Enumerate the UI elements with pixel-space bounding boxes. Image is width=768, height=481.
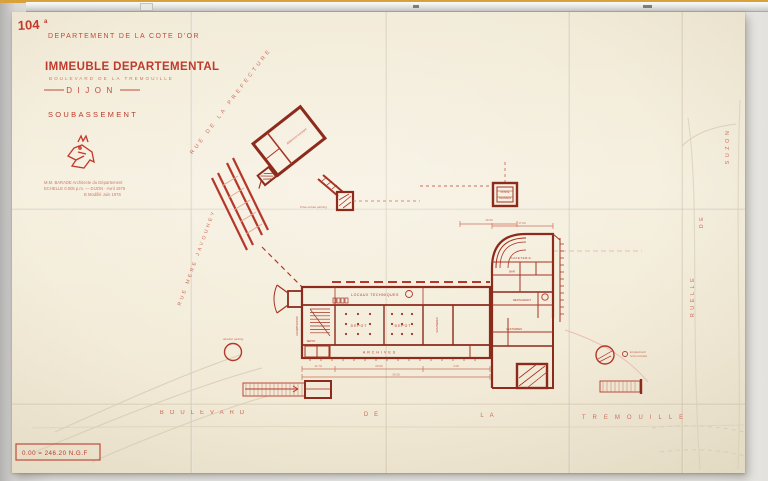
room-label-locaux-techniques: LOCAUX TECHNIQUES [351, 293, 399, 297]
parking-ramp-lines [212, 158, 268, 250]
sheet-address: BOULEVARD DE LA TREMOUILLE [49, 76, 174, 81]
room-label-depot: DEPOT [351, 324, 368, 328]
dimension-label: 4.00 [453, 364, 459, 368]
room-label-cafeteria: CAFETERIA [511, 256, 532, 260]
transformer-label-2: TRANSFO [499, 196, 511, 200]
room-label-depot-small: DEPOT [307, 340, 316, 343]
room-label-climatisation: CLIMATISATION [295, 316, 299, 336]
city-label: DIJON [66, 86, 118, 95]
street-ruelle: RUELLE [690, 275, 696, 317]
hydrant-label-2: borne incendie [630, 354, 648, 358]
department-line: DEPARTEMENT DE LA COTE D'OR [48, 33, 200, 40]
room-label-archives: ARCHIVES [363, 351, 397, 355]
transformer-post: POSTE TRANSFO 19.60 [420, 162, 517, 227]
street-boulevard: DE [364, 412, 384, 418]
dimension-label: 39.20 [392, 373, 400, 377]
sheet-number: 104 [17, 17, 40, 33]
street-boulevard: BOULEVARD [160, 410, 251, 416]
site-utilities: Aération parking Emplacement borne incen… [222, 337, 648, 364]
sheet-title: IMMEUBLE DEPARTEMENTAL [45, 61, 219, 73]
credit-line-2: ECHELLE 0.005 p.m. — DIJON · Avril 1975 [44, 186, 126, 191]
street-boulevard: TREMOUILLE [582, 415, 690, 421]
street-javouhey: RUE MERE JAVOUHEY [177, 209, 218, 307]
owl-emblem-icon [68, 136, 94, 168]
dimension-label: 17.60 [518, 221, 526, 225]
parking-intake-chute: Prise entrée parking [300, 175, 420, 210]
hydrant-label-1: Emplacement [630, 350, 646, 354]
title-block: 104 a DEPARTEMENT DE LA COTE D'OR IMMEUB… [16, 17, 219, 460]
room-label-depot: DEPOT [395, 324, 412, 328]
boulevard-ramps [243, 379, 641, 398]
credit-line-3: B Modifié Juin 1976 [84, 192, 121, 197]
room-label-bar: BAR [509, 270, 515, 274]
street-boulevard: LA [480, 413, 499, 419]
underground-link-dashed [262, 247, 302, 287]
drawing-name: SOUBASSEMENT [48, 110, 138, 119]
site-plan-drawing: Bâtiment existant Prise entrée parking P… [0, 0, 768, 481]
street-ruelle: SUZON [725, 128, 731, 165]
dimension-label: 29.60 [375, 364, 383, 368]
room-label-vestiaires: VESTIAIRES [506, 327, 522, 331]
credit-line-1: M.M. BARADE Architecte du Département [44, 180, 123, 185]
stairs [310, 309, 330, 336]
transformer-label-1: POSTE [501, 190, 510, 194]
sheet-number-suffix: a [44, 19, 48, 25]
main-building: LOCAUX TECHNIQUES DEPOT DEPOT ARCHIVES D… [274, 282, 490, 380]
dimension-label: 11.70 [314, 364, 322, 368]
right-wing: CAFETERIA BAR RESTAURANT VESTIAIRES 17.6… [492, 221, 564, 388]
room-label-sanitaires: SANITAIRES [435, 317, 439, 332]
dimension-label: 19.60 [485, 218, 493, 222]
parking-intake-label: Prise entrée parking [300, 205, 327, 209]
existing-building-label: Bâtiment existant [286, 127, 308, 145]
datum-value: 0.00 = 246.20 N.G.F [22, 450, 88, 457]
existing-building: Bâtiment existant [235, 107, 325, 190]
street-names: RUE DE LA PREFECTURE RUE MERE JAVOUHEY B… [160, 47, 731, 421]
street-ruelle: DE [699, 214, 705, 229]
aeration-label: Aération parking [222, 337, 244, 341]
room-label-restaurant: RESTAURANT [513, 298, 531, 302]
photograph-of-plan: Bâtiment existant Prise entrée parking P… [0, 0, 768, 481]
